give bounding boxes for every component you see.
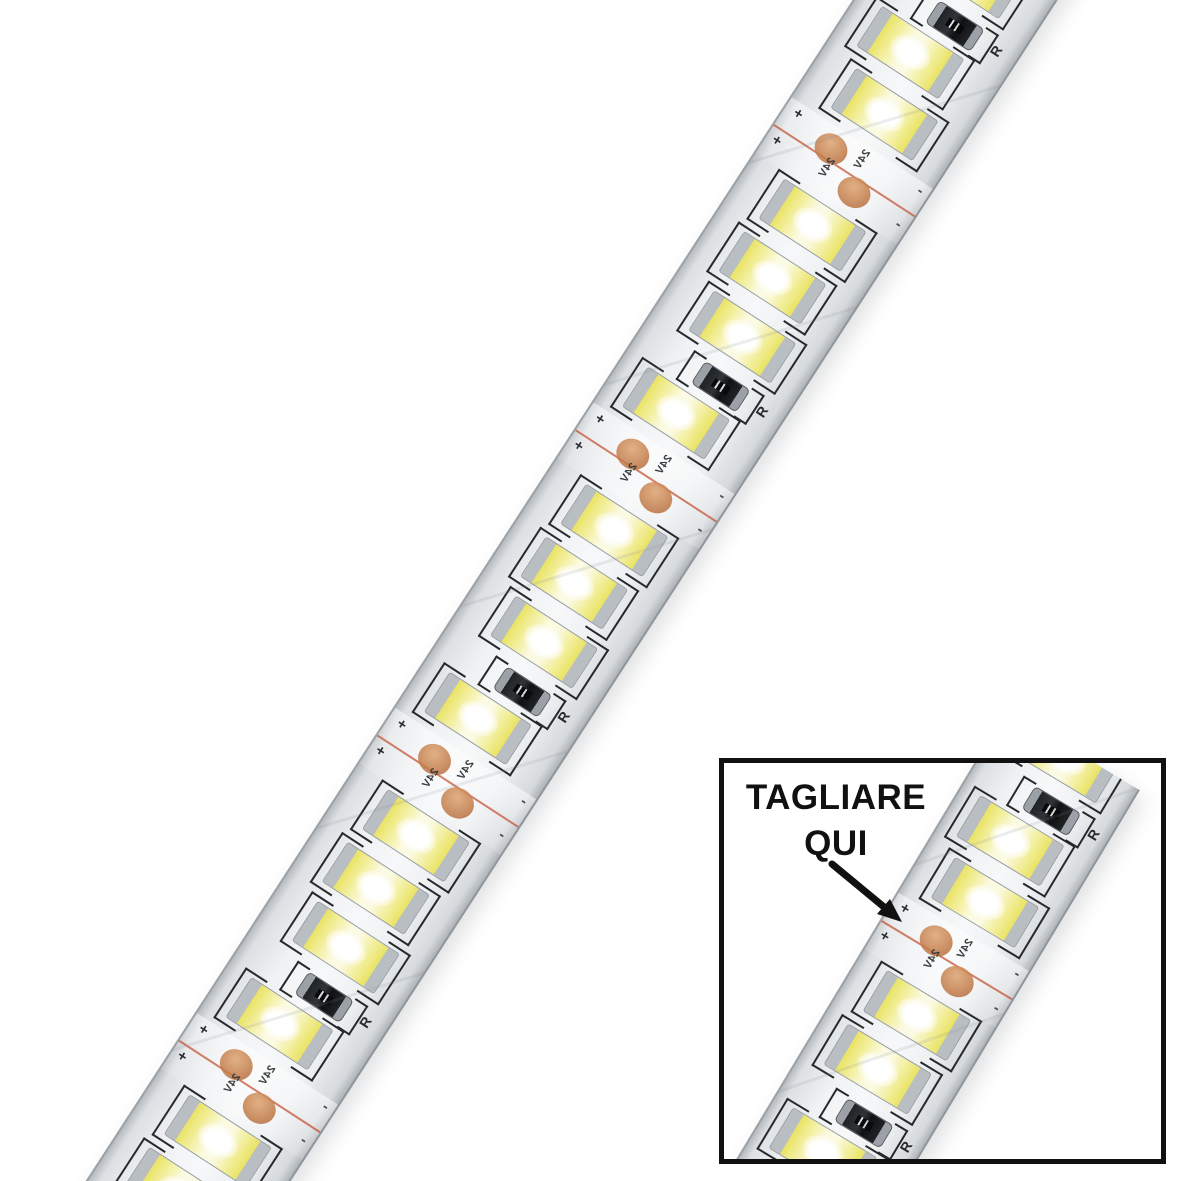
polarity-plus: + xyxy=(394,716,410,733)
polarity-plus: + xyxy=(769,132,785,149)
cut-here-label: TAGLIARE QUI xyxy=(732,775,940,866)
polarity-minus: - xyxy=(518,794,530,809)
voltage-label: 24V xyxy=(650,448,677,481)
polarity-minus: - xyxy=(991,1000,1003,1015)
resistor-label: R xyxy=(897,1138,916,1155)
voltage-label: 24V xyxy=(952,932,979,966)
polarity-plus: + xyxy=(174,1048,190,1065)
led-solder-bracket xyxy=(731,1159,784,1164)
polarity-plus: + xyxy=(790,105,806,122)
polarity-plus: + xyxy=(897,900,912,917)
polarity-minus: - xyxy=(496,827,508,842)
polarity-plus: + xyxy=(571,437,587,454)
polarity-plus: + xyxy=(592,411,608,428)
voltage-label: 24V xyxy=(254,1059,281,1092)
resistor-label: R xyxy=(753,403,772,420)
polarity-minus: - xyxy=(716,488,728,503)
resistor-label: R xyxy=(554,709,573,726)
resistor-label: R xyxy=(1084,826,1103,843)
polarity-minus: - xyxy=(319,1099,331,1114)
polarity-plus: + xyxy=(877,928,892,945)
voltage-label: 24V xyxy=(452,754,479,787)
polarity-minus: - xyxy=(1011,966,1023,981)
voltage-label: 24V xyxy=(849,143,876,176)
cut-here-label-line2: QUI xyxy=(732,821,940,867)
product-image: R24V24V++--R24V24V++--R24V24V++--R24V24V… xyxy=(0,0,1181,1181)
polarity-plus: + xyxy=(196,1021,212,1038)
polarity-minus: - xyxy=(694,522,706,537)
polarity-plus: + xyxy=(373,742,389,759)
polarity-minus: - xyxy=(914,183,926,198)
polarity-minus: - xyxy=(892,217,904,232)
resistor-label: R xyxy=(987,43,1006,60)
cut-here-label-line1: TAGLIARE xyxy=(732,775,940,821)
resistor-label: R xyxy=(356,1014,375,1031)
polarity-minus: - xyxy=(298,1133,310,1148)
cut-here-callout: TAGLIARE QUI R24V24V++--R xyxy=(719,758,1166,1164)
